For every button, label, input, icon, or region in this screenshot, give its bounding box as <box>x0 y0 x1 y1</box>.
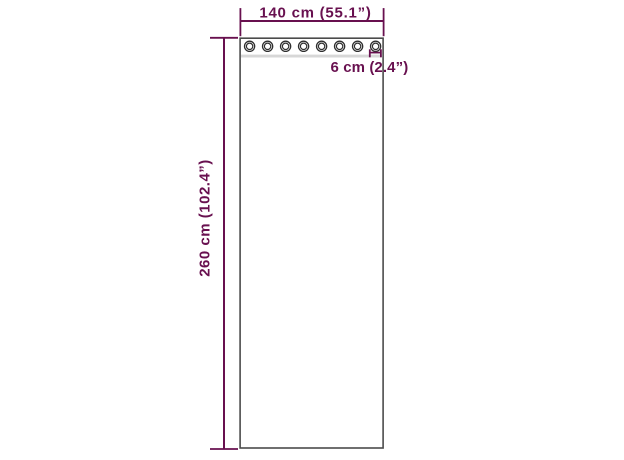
svg-text:140 cm (55.1”): 140 cm (55.1”) <box>259 5 371 22</box>
svg-text:260 cm (102.4”): 260 cm (102.4”) <box>197 159 214 277</box>
svg-text:6 cm (2.4”): 6 cm (2.4”) <box>330 59 408 76</box>
